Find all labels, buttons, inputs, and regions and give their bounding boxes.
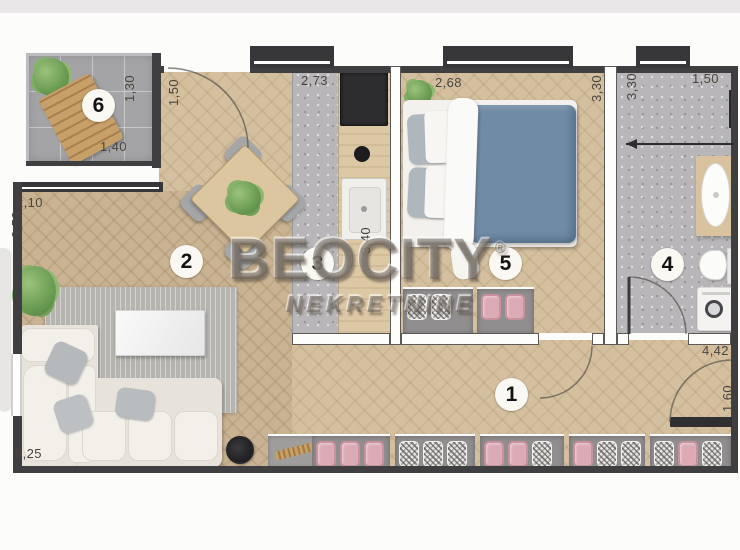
- floor-plan-image: 1,30 1,40 1,50 2,10 3,53 9,25 2,73 3,40 …: [0, 0, 740, 550]
- dimension-label: 3,53: [10, 211, 23, 238]
- bathroom-door-arc: [629, 277, 686, 334]
- room-badge-living: 2: [170, 245, 203, 278]
- dimension-label: 2,73: [301, 74, 328, 87]
- dimension-label: 2,68: [435, 76, 462, 89]
- room-badge-bathroom: 4: [651, 248, 684, 281]
- dimension-label: 9,25: [15, 447, 42, 460]
- dimension-label: 1,30: [123, 75, 136, 102]
- dimension-label: 1,40: [100, 140, 127, 153]
- dimension-label: 1,50: [167, 79, 180, 106]
- watermark-brand: BEOCITY®: [228, 226, 507, 293]
- dimension-label: 2,10: [16, 196, 43, 209]
- dimension-label: 4,42: [702, 344, 729, 357]
- room-badge-hallway: 1: [495, 378, 528, 411]
- registered-mark: ®: [495, 240, 507, 257]
- dimension-label: 3,30: [590, 75, 603, 102]
- dimension-label: 1,60: [721, 385, 734, 412]
- bedroom-door-arc: [540, 346, 592, 398]
- room-badge-terrace: 6: [82, 89, 115, 122]
- dimension-label: 3,30: [625, 73, 638, 100]
- watermark-brand-text: BEOCITY: [228, 226, 493, 293]
- dimension-label: 1,50: [692, 72, 719, 85]
- watermark-subtitle: NEKRETNINE: [286, 291, 476, 318]
- divider-arrow: [626, 139, 637, 149]
